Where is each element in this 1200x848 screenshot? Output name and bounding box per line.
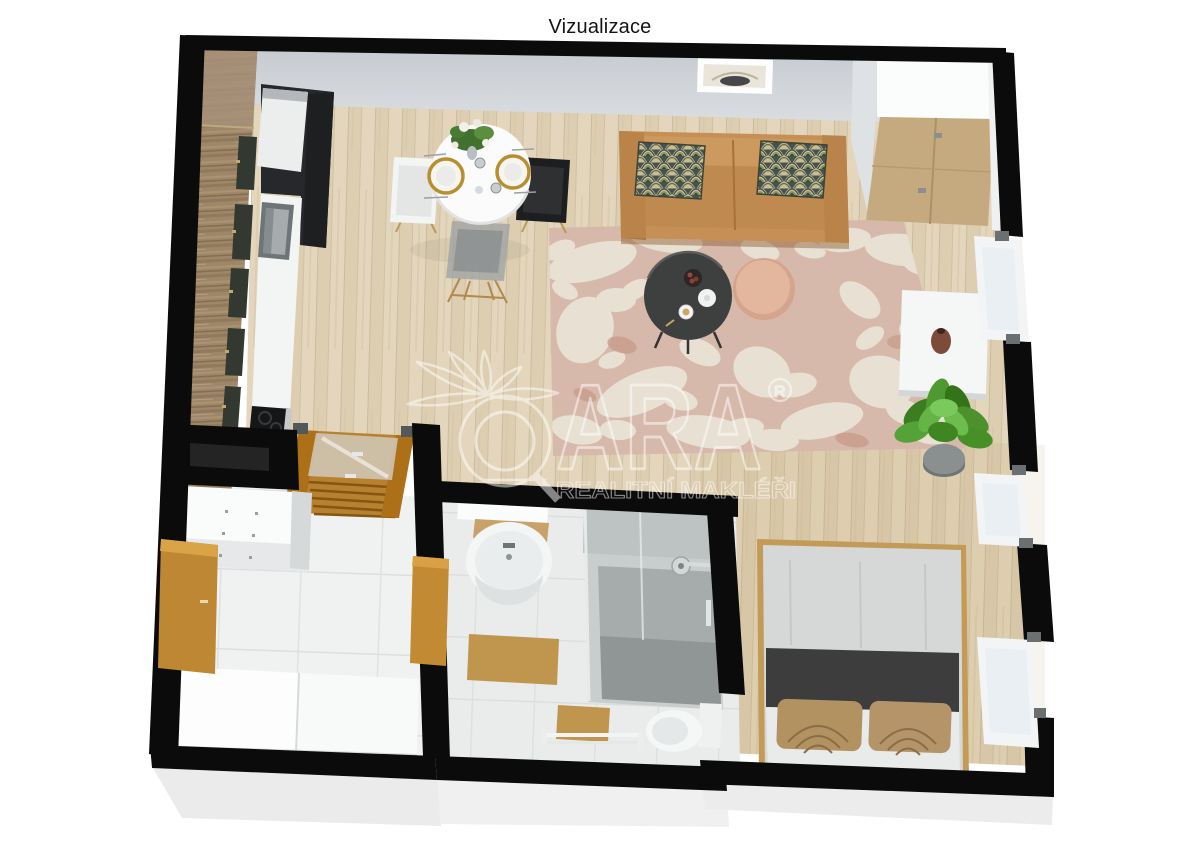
svg-text:R: R xyxy=(774,384,786,401)
svg-text:ARA: ARA xyxy=(556,359,762,495)
svg-text:REALITNÍ MAKLÉŘI: REALITNÍ MAKLÉŘI xyxy=(556,476,796,503)
